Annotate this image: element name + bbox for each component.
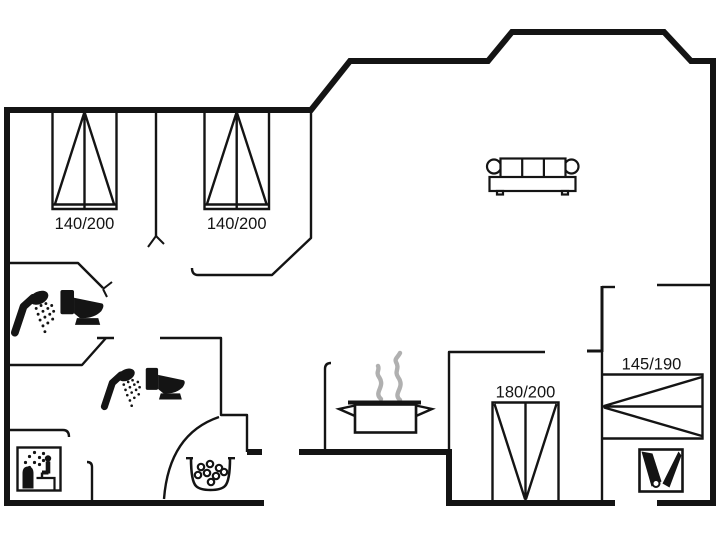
bed-bedroom1 [53, 110, 117, 209]
bunk-bed-icon [603, 375, 703, 439]
sofa-icon [487, 159, 579, 195]
shower-icon [104, 366, 141, 407]
kitchen-wall [325, 363, 331, 452]
hall-wall-stub [87, 462, 92, 503]
double-bed-icon [493, 403, 559, 503]
floorplan-svg: 140/200 140/200 180/200 145/190 [0, 0, 720, 540]
shower-icon [15, 288, 55, 333]
bed-size-label-bedroom2: 140/200 [207, 215, 267, 233]
toilet-icon [60, 290, 103, 325]
bed-bunk [603, 375, 703, 439]
pot-body [355, 405, 416, 433]
bathroom1-bottom-wall [5, 338, 106, 365]
double-bed-icon [205, 110, 270, 209]
shower-spray-dots [122, 379, 140, 407]
bed-size-label-bedroom3: 180/200 [496, 384, 556, 402]
sauna-stove [23, 467, 34, 489]
outer-wall-bottom-middle [299, 452, 615, 503]
interior-walls [5, 110, 713, 503]
bubbles [195, 461, 227, 485]
floorplan-canvas: 140/200 140/200 180/200 145/190 [0, 0, 720, 540]
steam [378, 366, 382, 399]
cleaning-equipment-icon [640, 450, 683, 492]
cooking-pot-icon [339, 353, 432, 433]
sauna-icon [18, 448, 61, 491]
pot-handle-left [339, 406, 355, 417]
shower-spray-dots [35, 302, 55, 333]
shower-and-toilet-icon-bathroom1 [15, 288, 104, 333]
double-bed-icon [53, 110, 117, 209]
pot-handle-right [416, 406, 432, 417]
bed-bedroom2 [205, 110, 270, 209]
steam [396, 353, 401, 400]
outer-wall-perimeter [7, 32, 713, 506]
outer-walls [7, 32, 713, 506]
bed-size-label-bunk: 145/190 [622, 356, 682, 374]
bed-size-label-bedroom1: 140/200 [55, 215, 115, 233]
door-mark [103, 282, 112, 297]
door-mark [148, 236, 164, 247]
hall-wall [5, 430, 69, 437]
bathroom1-top-wall [5, 263, 103, 288]
shower-and-toilet-icon-bathroom2 [104, 366, 184, 407]
bed-bedroom3 [493, 403, 559, 503]
whirlpool-tub-icon [186, 458, 235, 490]
vacuum-wheel [653, 480, 660, 487]
toilet-icon [146, 368, 185, 400]
